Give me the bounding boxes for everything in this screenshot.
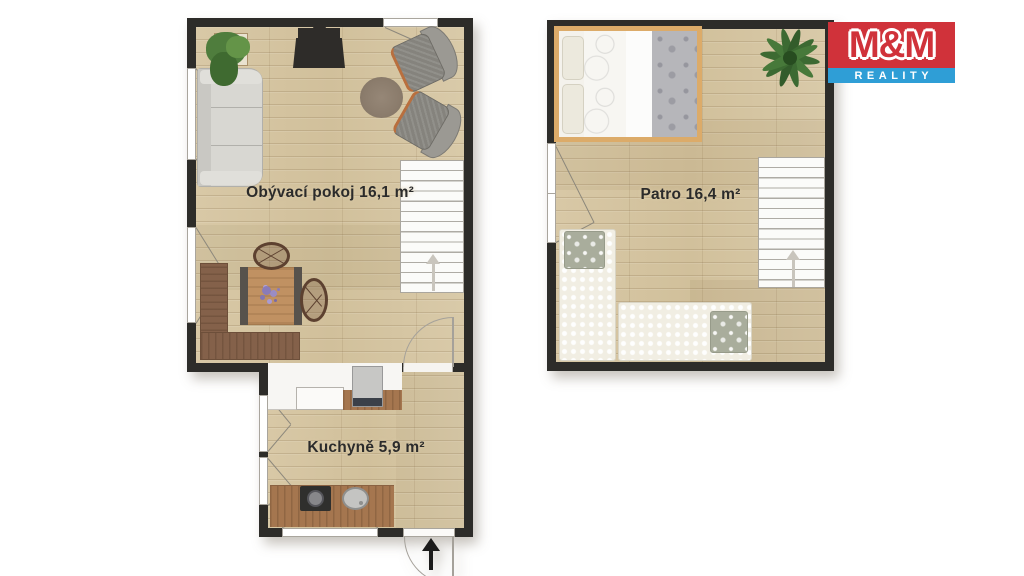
bed-pillow-floral (564, 231, 605, 269)
room-label-patro: Patro 16,4 m² (556, 186, 825, 204)
bed-sheet-pattern (584, 31, 626, 137)
plant-center (783, 51, 797, 65)
bed-pillow (562, 36, 584, 80)
window-mullion (548, 193, 555, 194)
logo-top-band: M&M M&M (828, 22, 955, 68)
logo-text: M&M (849, 22, 934, 68)
wall-bottom (547, 362, 834, 371)
bed-blanket (626, 31, 652, 137)
upper-floor-plan: Patro 16,4 m² (0, 0, 1024, 576)
stair-direction-arrow (792, 259, 795, 287)
logo-bottom-band: REALITY (828, 68, 955, 83)
floor-plan-canvas: Obývací pokoj 16,1 m² Kuchyně 5,9 m² (0, 0, 1024, 576)
bed-pillow-floral (710, 311, 748, 353)
window (547, 143, 556, 243)
plant (757, 28, 823, 88)
bed-pillow (562, 84, 584, 134)
stair-direction-arrow-head (786, 250, 800, 260)
bed-duvet (652, 31, 697, 137)
